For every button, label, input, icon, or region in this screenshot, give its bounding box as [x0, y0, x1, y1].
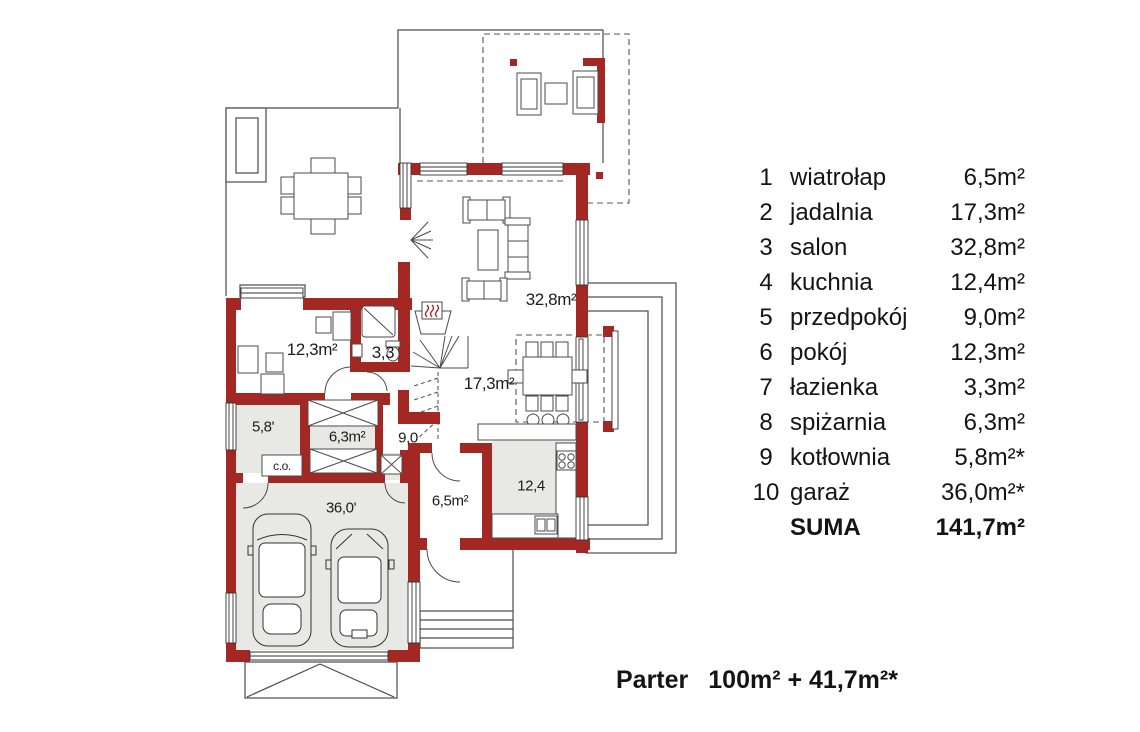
- legend-row: 5 przedpokój 9,0m²: [745, 300, 1025, 335]
- legend-row-area: 12,4m²: [950, 269, 1025, 297]
- legend-row-number: 9: [745, 444, 787, 472]
- room-area-label-salon: 32,8m²: [526, 290, 577, 310]
- legend-row: 10 garaż 36,0m²*: [745, 475, 1025, 510]
- floor-caption: Parter 100m² + 41,7m²*: [616, 666, 898, 695]
- legend-total-row: SUMA 141,7m²: [745, 510, 1025, 545]
- legend-row-number: 7: [745, 374, 787, 402]
- legend-row-number: 3: [745, 234, 787, 262]
- legend-row-name: garaż: [790, 479, 941, 507]
- stairs: [411, 336, 468, 442]
- room-area-label-spizarnia: 6,3m²: [329, 429, 365, 446]
- legend-row: 6 pokój 12,3m²: [745, 335, 1025, 370]
- legend-row-name: przedpokój: [790, 304, 964, 332]
- legend-row-name: łazienka: [790, 374, 964, 402]
- legend-row-name: kuchnia: [790, 269, 950, 297]
- legend-row: 2 jadalnia 17,3m²: [745, 195, 1025, 230]
- legend-row-area: 17,3m²: [950, 199, 1025, 227]
- legend-row-name: salon: [790, 234, 950, 262]
- room-area-label-kuchnia: 12,4: [517, 478, 545, 495]
- floor-caption-area: 100m² + 41,7m²*: [708, 666, 898, 695]
- legend-row: 9 kotłownia 5,8m²*: [745, 440, 1025, 475]
- floor-caption-name: Parter: [616, 666, 688, 695]
- room-area-label-kotlownia: 5,8': [252, 419, 274, 436]
- legend-row: 7 łazienka 3,3m²: [745, 370, 1025, 405]
- room-area-label-garaz: 36,0': [326, 500, 356, 517]
- car-coupe: [326, 529, 394, 647]
- garage-door: [250, 652, 388, 660]
- room-area-label-przedpokoj: 9,0: [398, 430, 418, 447]
- room-area-label-wiatrolap: 6,5m²: [432, 493, 468, 510]
- legend-row-name: kotłownia: [790, 444, 954, 472]
- legend-row-area: 32,8m²: [950, 234, 1025, 262]
- legend-row-name: spiżarnia: [790, 409, 964, 437]
- car-sedan: [248, 514, 316, 646]
- legend-row: 3 salon 32,8m²: [745, 230, 1025, 265]
- legend-total-area: 141,7m²: [936, 514, 1025, 542]
- boiler-co-label: c.o.: [273, 459, 291, 473]
- legend-row-area: 9,0m²: [964, 304, 1025, 332]
- legend-row: 4 kuchnia 12,4m²: [745, 265, 1025, 300]
- legend-row-number: 5: [745, 304, 787, 332]
- floor-plan-page: 12,3m² 3,3 17,3m² 32,8m² 5,8' 6,3m² 9,0 …: [0, 0, 1140, 732]
- legend-row-area: 36,0m²*: [941, 479, 1025, 507]
- legend-row-area: 3,3m²: [964, 374, 1025, 402]
- room-area-label-pokoj: 12,3m²: [287, 340, 338, 360]
- legend-row-area: 12,3m²: [950, 339, 1025, 367]
- legend-row-number: 2: [745, 199, 787, 227]
- legend-row-number: 4: [745, 269, 787, 297]
- legend-row-number: 10: [745, 479, 787, 507]
- room-area-label-jadalnia: 17,3m²: [464, 374, 515, 394]
- legend-row: 1 wiatrołap 6,5m²: [745, 160, 1025, 195]
- legend-row-area: 6,5m²: [964, 164, 1025, 192]
- legend-row-area: 5,8m²*: [954, 444, 1025, 472]
- legend-row-number: 6: [745, 339, 787, 367]
- room-area-label-lazienka: 3,3: [372, 343, 394, 363]
- legend-row-area: 6,3m²: [964, 409, 1025, 437]
- legend-row-name: wiatrołap: [790, 164, 964, 192]
- legend-row-name: jadalnia: [790, 199, 950, 227]
- legend-row-number: 8: [745, 409, 787, 437]
- legend-total-label: SUMA: [790, 514, 936, 542]
- legend-row: 8 spiżarnia 6,3m²: [745, 405, 1025, 440]
- room-legend: 1 wiatrołap 6,5m² 2 jadalnia 17,3m² 3 sa…: [745, 160, 1025, 545]
- legend-row-name: pokój: [790, 339, 950, 367]
- legend-row-number: 1: [745, 164, 787, 192]
